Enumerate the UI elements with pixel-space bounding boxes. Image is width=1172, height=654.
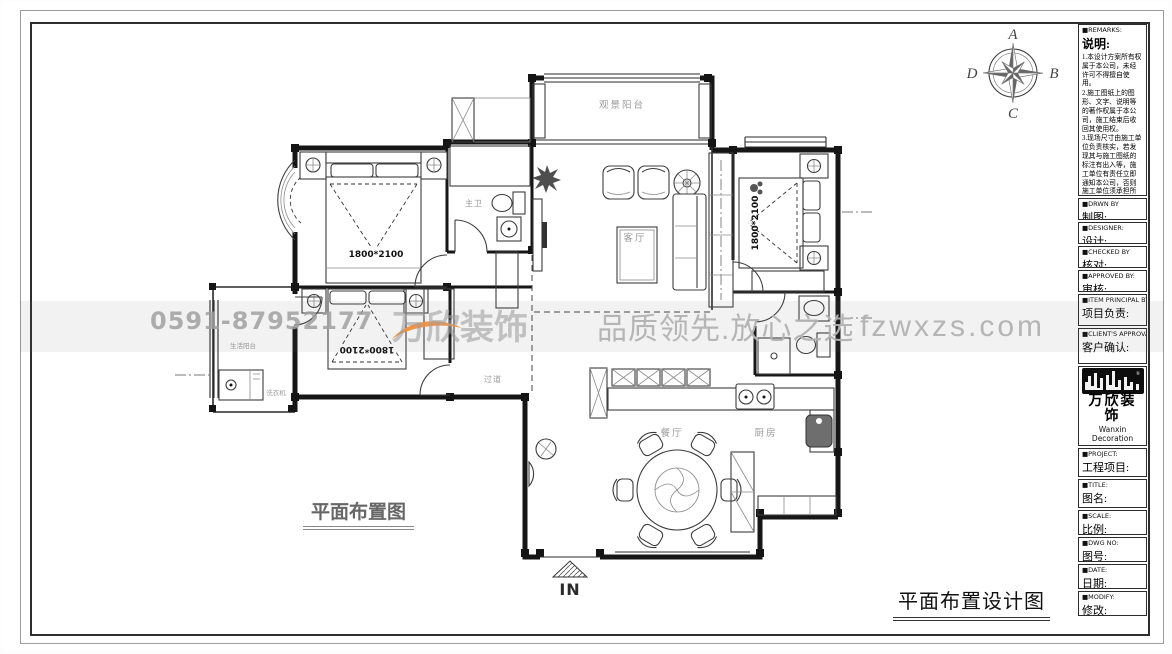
company-block: ® 万欣装饰 Wanxin Decoration Tel:(0591)87952… xyxy=(1078,366,1147,446)
field-item-principal: ■ITEM PRINCIPAL BY: 项目负责: xyxy=(1078,294,1147,326)
field-approved-by: ■APPROVED BY: 审核: xyxy=(1078,270,1147,292)
dining-room: 餐厅 过道 xyxy=(484,374,836,551)
field-cn: 审核: xyxy=(1082,281,1143,292)
field-en: ■SCALE: xyxy=(1082,512,1143,520)
field-cn: 工程项目: xyxy=(1082,459,1143,475)
field-project: ■PROJECT: 工程项目: xyxy=(1078,448,1147,477)
drawing-sheet: 1800*2100 主卫 观景阳台 客厅 xyxy=(0,0,1172,654)
remark-note: 1.本设计方案所有权属于本公司，未经许可不得擅自使用。 xyxy=(1082,54,1143,89)
company-tel1: Tel:(0591)87952-166 xyxy=(1082,445,1143,446)
field-drawn-by: ■DRWN BY 制图: xyxy=(1078,198,1147,220)
field-cn: 项目负责: xyxy=(1082,305,1143,321)
bed3-dim-label: 1800*2100 xyxy=(340,344,395,354)
field-en: ■PROJECT: xyxy=(1082,450,1143,458)
master-bath-label: 主卫 xyxy=(465,198,483,208)
field-cn: 修改: xyxy=(1082,602,1143,616)
utility-balcony: 生活阳台 洗衣机 xyxy=(219,341,286,400)
remarks-cn: 说明: xyxy=(1082,35,1143,52)
field-en: ■CHECKED BY xyxy=(1082,248,1143,256)
field-cn: 比例: xyxy=(1082,521,1143,535)
washer-label: 洗衣机 xyxy=(266,388,286,397)
bed-dim-label: 1800*2100 xyxy=(349,250,404,260)
field-cn: 设计: xyxy=(1082,233,1143,244)
floor-plan: 1800*2100 主卫 观景阳台 客厅 xyxy=(0,0,1172,654)
balcony-top-label: 观景阳台 xyxy=(599,99,645,111)
field-scale: ■SCALE: 比例: xyxy=(1078,510,1147,535)
field-en: ■APPROVED BY: xyxy=(1082,272,1143,280)
field-cn: 日期: xyxy=(1082,575,1143,589)
company-name-en: Wanxin Decoration xyxy=(1082,425,1143,443)
field-dwg-no: ■DWG NO: 图号: xyxy=(1078,537,1147,562)
exterior-walls xyxy=(213,78,838,557)
field-en: ■DWG NO: xyxy=(1082,539,1143,547)
remarks-en: ■REMARKS: xyxy=(1082,26,1143,34)
field-en: ■ITEM PRINCIPAL BY: xyxy=(1082,296,1143,304)
field-title: ■TITLE: 图名: xyxy=(1078,479,1147,508)
field-en: ■DRWN BY xyxy=(1082,200,1143,208)
master-bathroom: 主卫 xyxy=(450,98,530,252)
reg-mark: ® xyxy=(1136,371,1140,377)
compass-east-label: B xyxy=(1049,66,1058,82)
company-logo-skyline-icon: ® xyxy=(1082,368,1144,394)
remarks-box: ■REMARKS: 说明: 1.本设计方案所有权属于本公司，未经许可不得擅自使用… xyxy=(1078,24,1147,196)
field-designer: ■DESIGNER: 设计: xyxy=(1078,222,1147,244)
field-en: ■CLIENT'S APPROVAL: xyxy=(1082,330,1143,338)
title-block: ■REMARKS: 说明: 1.本设计方案所有权属于本公司，未经许可不得擅自使用… xyxy=(1076,23,1149,635)
field-en: ■TITLE: xyxy=(1082,481,1143,489)
bedroom-2: 1800*2100 xyxy=(733,154,828,292)
field-checked-by: ■CHECKED BY 核对: xyxy=(1078,246,1147,268)
entrance-arrow-icon xyxy=(553,561,587,577)
field-cn: 图号: xyxy=(1082,548,1143,562)
entrance-label: IN xyxy=(559,580,580,599)
compass-west-label: D xyxy=(966,66,978,82)
compass-rose: A B C D xyxy=(966,27,1059,122)
bedroom-1: 1800*2100 xyxy=(300,152,447,287)
living-label: 客厅 xyxy=(623,232,646,244)
field-en: ■DATE: xyxy=(1082,566,1143,574)
field-cn: 图名: xyxy=(1082,490,1143,506)
compass-north-label: A xyxy=(1007,27,1018,43)
bed2-dim-label: 1800*2100 xyxy=(751,196,761,251)
field-cn: 客户确认: xyxy=(1082,339,1143,355)
field-date: ■DATE: 日期: xyxy=(1078,564,1147,589)
field-client-approval: ■CLIENT'S APPROVAL: 客户确认: xyxy=(1078,328,1147,364)
hallway-label: 过道 xyxy=(484,374,502,384)
company-name-cn: 万欣装饰 xyxy=(1082,394,1143,425)
plan-label: 平面布置图 xyxy=(303,497,414,530)
field-en: ■MODIFY: xyxy=(1082,593,1143,601)
remark-note: 2.施工图纸上的图形、文字、说明等的著作权属于本公司，施工结束后收回其使用权。 xyxy=(1082,90,1143,134)
utility-balcony-label: 生活阳台 xyxy=(230,341,256,350)
plant-icon xyxy=(532,165,561,193)
field-cn: 核对: xyxy=(1082,257,1143,268)
compass-south-label: C xyxy=(1008,106,1019,122)
field-en: ■DESIGNER: xyxy=(1082,224,1143,232)
field-cn: 制图: xyxy=(1082,209,1143,220)
bedroom-3: 1800*2100 xyxy=(294,289,454,395)
field-modify: ■MODIFY: 修改: xyxy=(1078,591,1147,616)
bathroom-2 xyxy=(755,292,830,374)
sheet-title: 平面布置设计图 xyxy=(893,585,1050,621)
dining-label: 餐厅 xyxy=(660,427,683,439)
remark-note: 3.现场尺寸由施工单位负责核实，若发现其与施工图纸的标注有出入等，施工单位有责任… xyxy=(1082,135,1143,196)
entrance: IN xyxy=(540,557,600,599)
kitchen-label: 厨房 xyxy=(754,427,777,439)
kitchen: 厨房 xyxy=(590,368,834,452)
